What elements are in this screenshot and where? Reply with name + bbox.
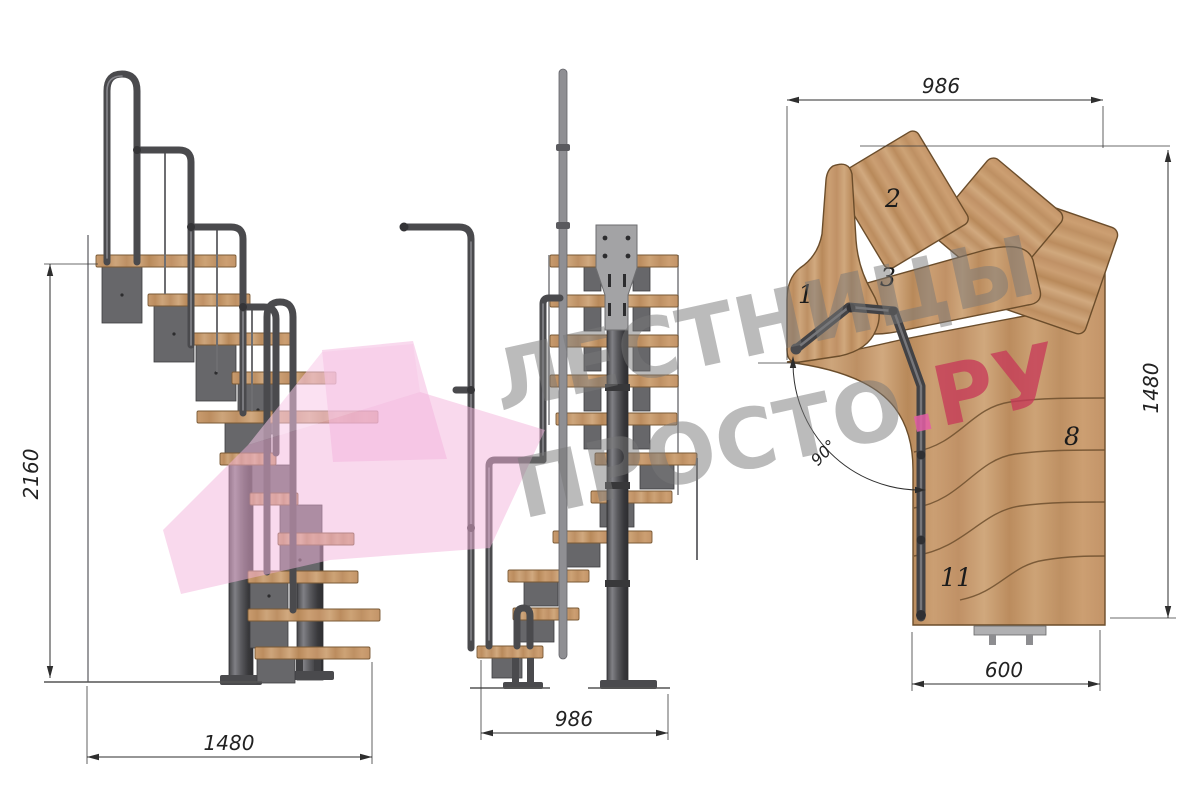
dim-plan-bottom-label: 600 bbox=[985, 658, 1023, 682]
dim-side-width-label: 1480 bbox=[204, 731, 255, 755]
angle-label: 90° bbox=[807, 436, 840, 470]
step-number-1: 1 bbox=[798, 280, 814, 309]
plan-floor-leg bbox=[989, 635, 996, 645]
plan-floor-plate bbox=[974, 626, 1046, 635]
column-joint bbox=[605, 384, 630, 391]
column-flange bbox=[220, 675, 262, 685]
dim-plan-top-label: 986 bbox=[922, 74, 960, 98]
step-number-11: 11 bbox=[940, 563, 972, 592]
top-pole bbox=[559, 69, 567, 659]
step-number-3: 3 bbox=[880, 263, 896, 292]
dimension-plan-bottom: 600 bbox=[912, 630, 1100, 691]
dim-side-height-label: 2160 bbox=[19, 449, 43, 500]
dim-plan-right-label: 1480 bbox=[1139, 363, 1163, 414]
pole-joint bbox=[556, 144, 570, 151]
plan-view-drawing: 1 2 3 8 11 986 1480 6 bbox=[758, 74, 1176, 691]
column-joint bbox=[605, 482, 630, 489]
step-number-2: 2 bbox=[884, 184, 901, 213]
drawing-canvas: 2160 1480 bbox=[0, 0, 1200, 807]
pole-joint bbox=[556, 222, 570, 229]
step-number-8: 8 bbox=[1064, 422, 1080, 451]
front-post bbox=[527, 658, 534, 682]
dimension-side-height: 2160 bbox=[19, 264, 98, 678]
front-post bbox=[512, 658, 519, 682]
staircase-drawing: 2160 1480 bbox=[0, 0, 1200, 807]
dimension-plan-right: 1480 bbox=[1110, 150, 1176, 618]
mounting-plate bbox=[596, 225, 637, 330]
anchor-plate bbox=[290, 671, 334, 680]
front-view-drawing: 986 bbox=[470, 69, 697, 740]
dim-front-width-label: 986 bbox=[555, 707, 593, 731]
column-joint bbox=[605, 580, 630, 587]
plan-floor-leg bbox=[1026, 635, 1033, 645]
